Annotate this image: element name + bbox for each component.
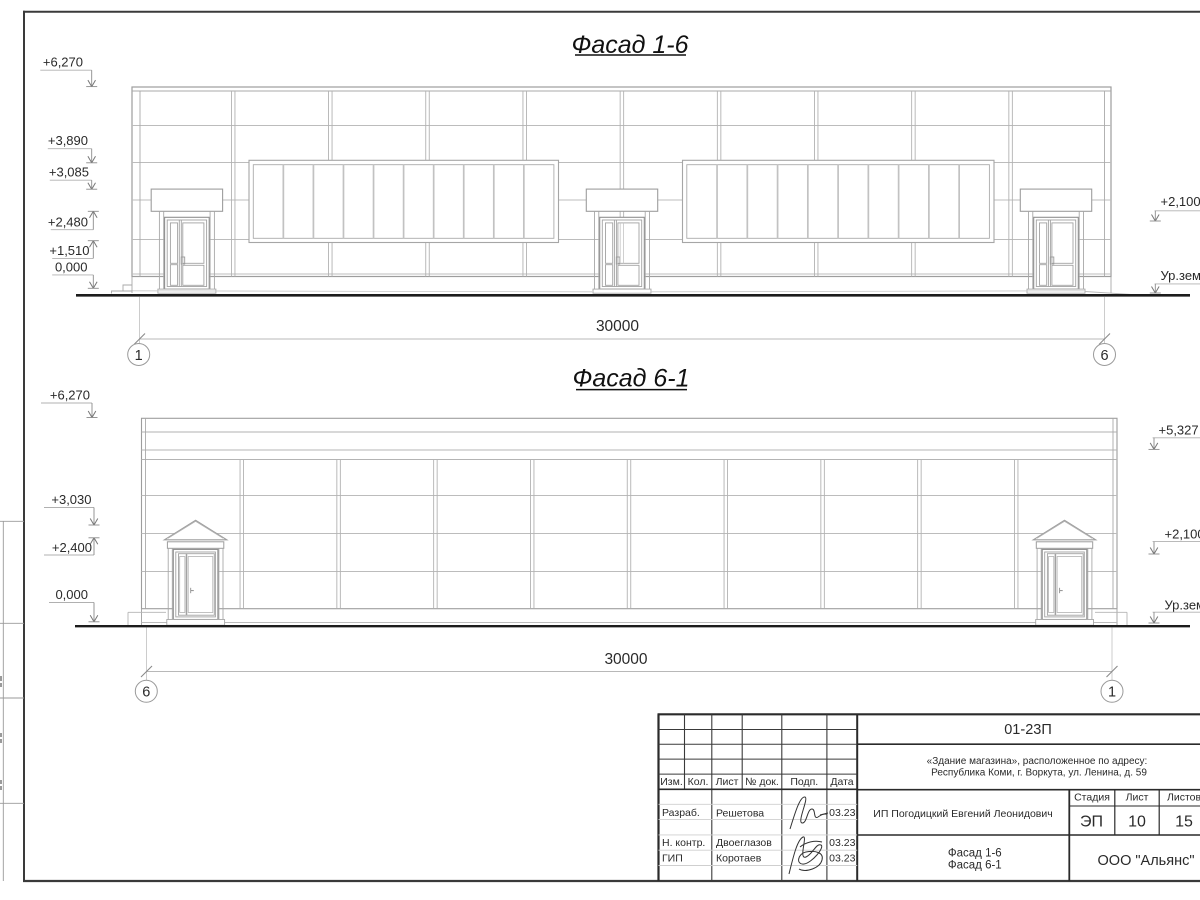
svg-text:ГИП: ГИП	[662, 853, 683, 865]
svg-text:0,000: 0,000	[55, 587, 88, 602]
svg-text:Республика Коми, г. Воркута, у: Республика Коми, г. Воркута, ул. Ленина,…	[931, 767, 1147, 779]
svg-text:30000: 30000	[604, 651, 647, 668]
svg-text:Ур.зем: Ур.зем	[1165, 597, 1200, 612]
svg-text:+6,270: +6,270	[43, 55, 83, 70]
svg-text:«Здание магазина», расположенн: «Здание магазина», расположенное по адре…	[927, 756, 1148, 767]
svg-text:Листов: Листов	[1167, 792, 1200, 804]
svg-text:ООО "Альянс": ООО "Альянс"	[1098, 853, 1195, 869]
svg-text:Фасад 1-6: Фасад 1-6	[948, 848, 1002, 860]
svg-text:№ док.: № док.	[745, 776, 779, 788]
svg-text:+6,270: +6,270	[50, 388, 90, 403]
svg-text:Стадия: Стадия	[1074, 792, 1110, 804]
svg-text:Фасад 6-1: Фасад 6-1	[948, 859, 1002, 871]
svg-text:6: 6	[142, 685, 150, 701]
svg-text:Изм.: Изм.	[660, 776, 683, 788]
svg-text:Дата: Дата	[830, 776, 853, 788]
svg-text:Лист: Лист	[716, 776, 739, 788]
svg-text:Решетова: Решетова	[716, 808, 764, 820]
svg-text:1: 1	[1108, 685, 1116, 701]
svg-text:+2,100: +2,100	[1165, 527, 1200, 542]
svg-text:+5,327: +5,327	[1159, 423, 1199, 438]
svg-text:ЭП: ЭП	[1080, 814, 1103, 831]
svg-text:15: 15	[1175, 814, 1193, 831]
svg-text:+2,400: +2,400	[52, 540, 92, 555]
svg-text:+3,085: +3,085	[49, 165, 89, 180]
svg-text:+3,890: +3,890	[48, 133, 88, 148]
svg-text:0,000: 0,000	[55, 260, 88, 275]
svg-text:1: 1	[135, 348, 143, 364]
svg-text:03.23: 03.23	[829, 807, 855, 819]
svg-text:Лист: Лист	[1126, 792, 1149, 804]
svg-text:Фасад 6-1: Фасад 6-1	[572, 364, 689, 392]
svg-text:01-23П: 01-23П	[1004, 722, 1052, 738]
svg-text:03.23: 03.23	[829, 853, 855, 865]
svg-text:Двоеглазов: Двоеглазов	[716, 837, 772, 849]
svg-text:ИП Погодицкий Евгений Леонидов: ИП Погодицкий Евгений Леонидович	[873, 808, 1052, 820]
svg-text:Кол.: Кол.	[688, 776, 709, 788]
svg-text:Н. контр.: Н. контр.	[662, 837, 705, 849]
svg-text:03.23: 03.23	[829, 837, 855, 849]
svg-text:6: 6	[1100, 348, 1108, 364]
svg-text:+2,100: +2,100	[1161, 194, 1200, 209]
svg-text:Разраб.: Разраб.	[662, 807, 700, 819]
svg-text:+1,510: +1,510	[49, 243, 89, 258]
svg-text:+3,030: +3,030	[51, 492, 91, 507]
svg-text:Подп.: Подп.	[790, 776, 818, 788]
svg-text:10: 10	[1128, 814, 1146, 831]
svg-text:Коротаев: Коротаев	[716, 853, 762, 865]
svg-text:30000: 30000	[596, 318, 639, 335]
svg-text:Ур.зем: Ур.зем	[1161, 268, 1200, 283]
svg-text:+2,480: +2,480	[48, 214, 88, 229]
